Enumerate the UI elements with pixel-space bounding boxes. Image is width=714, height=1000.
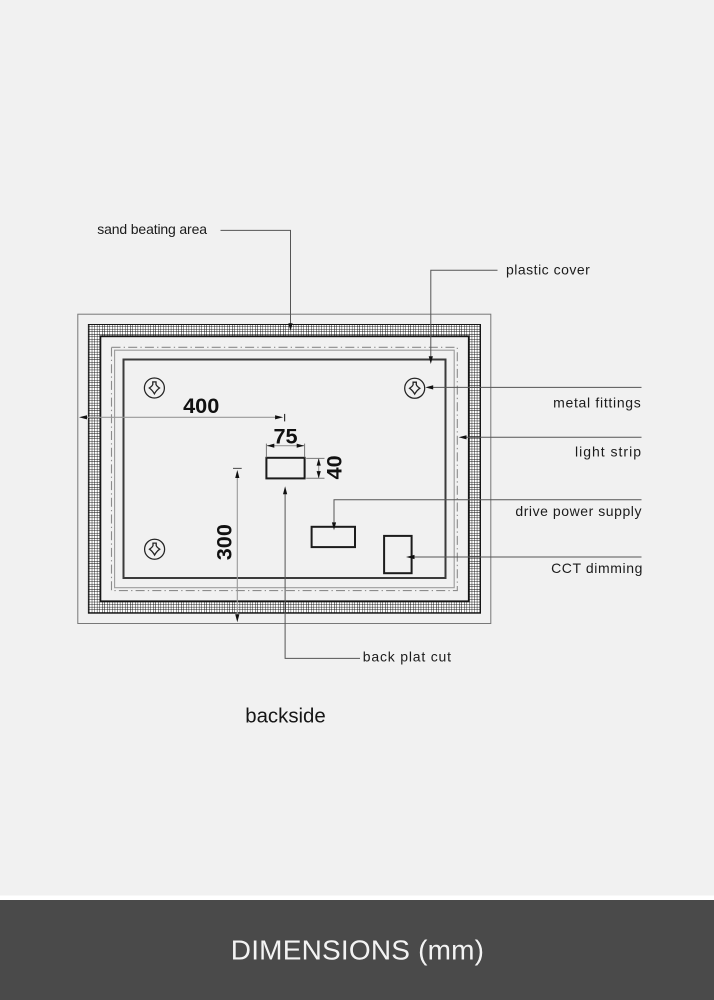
svg-text:back plat cut: back plat cut xyxy=(363,648,452,664)
svg-text:drive power supply: drive power supply xyxy=(515,503,642,519)
svg-text:300: 300 xyxy=(212,524,237,560)
svg-text:CCT dimming: CCT dimming xyxy=(551,560,643,576)
svg-text:backside: backside xyxy=(245,706,325,728)
svg-text:75: 75 xyxy=(273,423,297,448)
svg-text:400: 400 xyxy=(183,393,219,418)
svg-text:DIMENSIONS (mm): DIMENSIONS (mm) xyxy=(231,934,484,965)
svg-text:40: 40 xyxy=(322,455,347,479)
svg-text:light strip: light strip xyxy=(575,444,642,460)
svg-text:metal fittings: metal fittings xyxy=(553,395,641,411)
svg-text:sand beating area: sand beating area xyxy=(97,221,207,237)
svg-text:plastic cover: plastic cover xyxy=(506,261,590,277)
